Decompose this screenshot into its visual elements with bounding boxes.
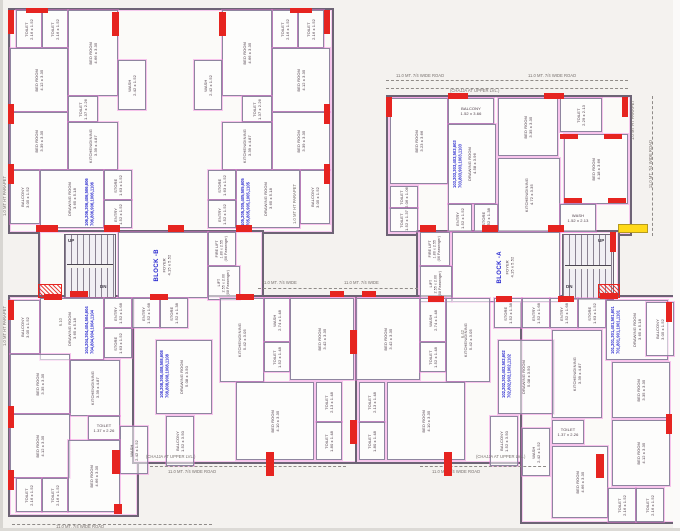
column-marker <box>666 302 672 322</box>
room-kitchen-dining: KITCHEN/DINING3.39 x 4.87 <box>222 122 272 170</box>
room-entry: ENTRY1.52 x 1.68 <box>132 298 160 328</box>
annotation-1-0-mt-ht-parapet: 1.0 MT HT PARAPET <box>2 306 7 346</box>
room-balcony: BALCONY3.05 x 1.52 <box>10 170 40 224</box>
column-marker <box>496 296 512 302</box>
yellow-marker <box>618 224 648 233</box>
annotation-11-0-mt-7-4-wide: 11.0 MT. 7/4 WIDE <box>344 280 379 285</box>
stair-direction-label: DN <box>100 284 107 289</box>
stair-direction-label: UP <box>598 238 604 243</box>
room-toilet: TOILET2.13 x 1.48 <box>359 382 385 422</box>
column-marker <box>114 504 122 514</box>
annotation-1-0-mt-ht-parapet: 1.0 MT HT PARAPET <box>2 176 7 216</box>
dimension-line <box>258 288 418 289</box>
column-marker <box>548 225 564 232</box>
room-bed-room: BED ROOM3.39 x 3.35 <box>272 112 330 170</box>
annotation-11-0-mt-7-4-wide-road: 11.0 MT. 7/4 WIDE ROAD <box>168 469 216 474</box>
unit-numbers: 108,208,308,408,508,608708,808,908,1008,… <box>159 350 171 398</box>
room-kitchen-dining: KITCHEN/DINING5.42 x 3.05 <box>446 298 490 382</box>
room-wash: WASH2.42 x 1.52 <box>522 428 550 476</box>
column-marker <box>428 296 444 302</box>
dimension-line <box>420 466 546 467</box>
room-wash: WASH2.42 x 1.52 <box>118 60 146 110</box>
annotation-11-0-mt-7-4-wide-road: 11.0 MT. 7/4 WIDE ROAD <box>432 469 480 474</box>
room-store: STORE1.63 x 1.52 <box>578 298 606 328</box>
unit-numbers: 105,205,305,405,505,605705,805,905,1005,… <box>240 178 254 226</box>
column-marker <box>596 454 604 478</box>
annotation-1-0-mt-ht-parapet: 1.0 MT HT PARAPET <box>630 100 635 140</box>
column-marker <box>8 300 14 320</box>
room-entry: ENTRY1.52 x 1.52 <box>448 204 472 232</box>
dimension-line <box>386 88 628 89</box>
room-toilet: TOILET1.52 x 1.37 <box>390 208 418 232</box>
column-marker <box>560 134 578 139</box>
column-marker <box>604 134 622 139</box>
room-toilet: TOILET2.16 x 1.52 <box>298 10 324 48</box>
dimension-line <box>12 524 212 525</box>
room-toilet: TOILET2.16 x 1.52 <box>636 488 664 522</box>
room-wash: WASH2.42 x 1.52 <box>120 426 148 474</box>
stair-direction-label: DN <box>566 284 573 289</box>
column-marker <box>236 225 252 232</box>
column-marker <box>104 225 120 232</box>
column-marker <box>608 198 626 203</box>
dimension-line <box>150 466 346 467</box>
room-toilet: TOILET2.13 x 1.48 <box>316 382 342 422</box>
column-marker <box>386 97 392 117</box>
stair-direction-label: UP <box>68 238 74 243</box>
annotation-11-0-mt-7-4-wide-road: 11.0 MT. 7/4 WIDE ROAD <box>528 73 576 78</box>
room-balcony: BALCONY3.05 x 1.52 <box>10 300 40 354</box>
annotation-1-0-mt-ht-parapet: 1.0 MT HT PARAPET <box>292 184 297 224</box>
room-wash: WASH1.52 x 2.13 <box>560 204 596 232</box>
room-toilet: TOILET2.16 x 1.52 <box>42 478 68 512</box>
room-toilet: TOILET2.16 x 1.52 <box>608 488 636 522</box>
room-toilet: TOILET1.80 x 1.48 <box>316 422 342 460</box>
floor-plan-drawing: TOILET2.16 x 1.52TOILET2.16 x 1.52BED RO… <box>0 0 680 531</box>
room-toilet: TOILET2.16 x 1.52 <box>42 10 68 48</box>
room-balcony: BALCONY1.52 x 3.66 <box>448 98 494 124</box>
column-marker <box>168 225 184 232</box>
room-bed-room: BED ROOM3.42 x 3.35 <box>290 298 354 380</box>
room-toilet: TOILET1.37 x 2.26 <box>88 416 120 440</box>
column-marker <box>8 104 14 124</box>
column-marker <box>544 93 564 99</box>
column-marker <box>558 296 574 302</box>
room-toilet: TOILET2.16 x 1.52 <box>16 478 42 512</box>
room-wash: WASH2.42 x 1.52 <box>194 60 222 110</box>
room-toilet: TOILET1.52 x 1.48 <box>420 342 446 372</box>
column-marker <box>266 452 274 476</box>
column-marker <box>330 291 344 297</box>
annotation-11-0-mt-7-4-wide-road: 11.0 MT. 7/4 WIDE ROAD <box>396 73 444 78</box>
room-kitchen-dining: KITCHEN/DINING3.39 x 4.87 <box>552 330 602 418</box>
room-store: STORE1.52 x 1.38 <box>160 298 188 328</box>
annotation-chajja-at-upper-lvl: (CHAJJA AT UPPER LVL.) <box>476 454 525 459</box>
room-bed-room: BED ROOM4.12 x 3.35 <box>10 48 68 112</box>
column-marker <box>8 470 14 490</box>
unit-numbers: 106,206,306,406,506,606706,806,906,1006,… <box>84 178 98 226</box>
annotation-6-42: 6.42 <box>460 330 465 338</box>
room-kitchen-dining: KITCHEN/DINING3.39 x 4.87 <box>68 122 118 170</box>
page-margin <box>673 0 680 531</box>
room-bed-room: BED ROOM3.39 x 3.35 <box>10 112 68 170</box>
unit-numbers: 104,204,304,404,504,604704,804,904,1004,… <box>84 306 97 354</box>
room-kitchen-dining: KITCHEN/DINING3.39 x 4.87 <box>70 360 120 416</box>
column-marker <box>219 12 226 36</box>
dimension-line <box>652 96 653 236</box>
room-block-a: BLOCK -AFOYER4.15 x 5.52 <box>452 232 560 302</box>
room-bed-room: BED ROOM3.35 x 3.35 <box>612 362 670 418</box>
column-marker <box>350 420 357 444</box>
column-marker <box>324 164 330 184</box>
column-marker <box>600 293 618 299</box>
column-marker <box>44 294 62 300</box>
room-entry: ENTRY1.52 x 1.68 <box>522 298 550 328</box>
room-bed-room: BED ROOM4.66 x 3.35 <box>222 10 272 96</box>
room-toilet: TOILET2.16 x 1.52 <box>272 10 298 48</box>
room-toilet: TOILET2.29 x 2.13 <box>560 98 602 132</box>
column-marker <box>324 10 330 34</box>
room-entry: ENTRY1.52 x 1.68 <box>550 298 578 328</box>
room-bed-room: BED ROOM3.35 x 3.35 <box>10 354 70 414</box>
room-bed-room: BED ROOM4.10 x 3.35 <box>236 382 314 460</box>
column-marker <box>8 164 14 184</box>
room-entry: ENTRY1.52 x 1.68 <box>104 298 132 328</box>
unit-numbers: 102,202,302,402,502,602702,802,902,1002,… <box>501 350 513 398</box>
room-bed-room: BED ROOM4.18 x 3.66 <box>564 134 628 204</box>
room-fire-lift: FIRE LIFT1.80 x 2.55(06 Passenger) <box>420 232 450 266</box>
column-marker <box>482 225 498 232</box>
room-store: STORE1.63 x 1.52 <box>104 328 132 358</box>
unit-numbers: 101,201,301,401,501,601701,801,901,1001,… <box>610 308 623 354</box>
room-bed-room: BED ROOM4.12 x 3.35 <box>612 420 670 486</box>
column-marker <box>350 330 357 354</box>
unit-numbers: 103,203,303,403,503,603703,803,903,1003,… <box>452 138 465 188</box>
room-bed-room: BED ROOM4.12 x 3.35 <box>272 48 330 112</box>
column-marker <box>610 232 616 252</box>
room-wash: WASH2.74 x 1.48 <box>264 298 290 342</box>
annotation-6-10: 6.10 <box>58 318 63 326</box>
room-bed-room: BED ROOM3.35 x 3.35 <box>498 98 558 156</box>
column-marker <box>448 93 468 99</box>
room-toilet: TOILET2.06 x 1.06 <box>390 186 418 208</box>
room-kitchen-dining: KITCHEN/DINING5.42 x 3.05 <box>220 298 264 382</box>
column-marker <box>70 291 88 297</box>
annotation-chajja-at-upper-lvl: (CHAJJA AT UPPER LVL.) <box>146 454 195 459</box>
room-toilet: TOILET1.52 x 1.48 <box>264 342 290 372</box>
room-toilet: TOILET1.80 x 1.48 <box>359 422 385 460</box>
room-toilet: TOILET1.37 x 2.26 <box>68 96 98 122</box>
column-marker <box>622 97 628 117</box>
column-marker <box>666 414 672 434</box>
column-marker <box>36 225 58 232</box>
room-store: STORE1.63 x 1.52 <box>104 170 132 200</box>
room-entry: ENTRY1.52 x 1.52 <box>208 200 236 228</box>
room-toilet: TOILET1.37 x 2.26 <box>242 96 272 122</box>
column-marker <box>150 294 168 300</box>
column-marker <box>362 291 376 297</box>
dimension-line <box>386 80 628 81</box>
room-store: STORE1.63 x 1.52 <box>208 170 236 200</box>
annotation-11-0-mt-7-4-wide: 11.0 MT. 7/4 WIDE <box>262 280 297 285</box>
room-toilet: TOILET1.37 x 2.26 <box>552 420 584 444</box>
column-marker <box>444 452 452 476</box>
room-block-b: BLOCK -BFOYER4.15 x 5.52 <box>118 232 208 298</box>
room-toilet: TOILET2.16 x 1.52 <box>16 10 42 48</box>
room-bed-room: BED ROOM4.10 x 3.35 <box>387 382 465 460</box>
column-marker <box>236 294 254 300</box>
room-fire-lift: FIRE LIFT1.80 x 2.55(06 Passenger) <box>208 232 236 266</box>
room-wash: WASH2.74 x 1.48 <box>420 298 446 342</box>
column-marker <box>8 406 14 428</box>
column-marker <box>8 10 14 34</box>
column-marker <box>420 225 436 232</box>
room-bed-room: BED ROOM3.42 x 3.35 <box>356 298 420 380</box>
column-marker <box>290 8 312 13</box>
room-entry: ENTRY1.52 x 1.52 <box>104 200 132 228</box>
column-marker <box>564 198 582 203</box>
room-bed-room: BED ROOM3.23 x 3.66 <box>390 98 448 184</box>
column-marker <box>112 450 120 474</box>
column-marker <box>26 8 48 13</box>
room-kitchen-dining: KITCHEN/DINING4.72 x 3.35 <box>498 158 560 232</box>
room-store: STORE1.52 x 1.38 <box>494 298 522 328</box>
column-marker <box>324 104 330 124</box>
column-marker <box>112 12 119 36</box>
room-bed-room: BED ROOM4.12 x 3.35 <box>10 414 70 478</box>
room-bed-room: BED ROOM4.66 x 3.35 <box>68 10 118 96</box>
staircase-block-b <box>64 234 116 298</box>
